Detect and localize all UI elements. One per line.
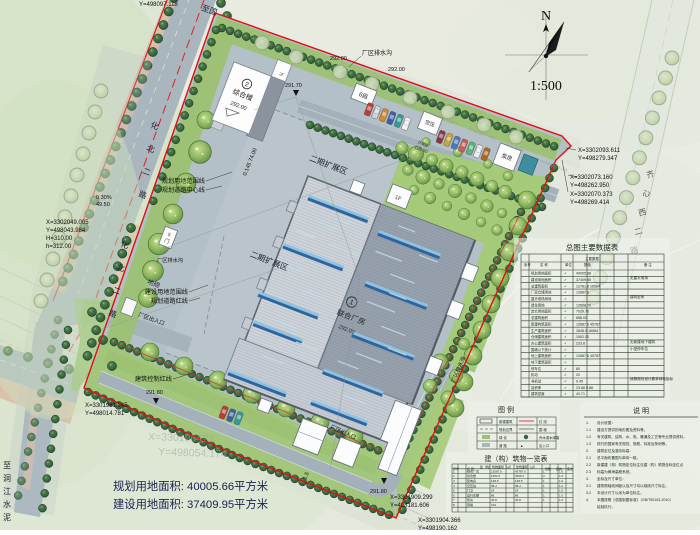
svg-text:X=3301904.366: X=3301904.366	[418, 518, 461, 524]
svg-text:序号: 序号	[524, 262, 531, 267]
svg-text:备 注: 备 注	[644, 262, 652, 267]
svg-text:建（构）筑物一览表: 建（构）筑物一览表	[485, 454, 548, 463]
svg-text:按照规划设计要求绿地指标: 按照规划设计要求绿地指标	[630, 376, 674, 381]
svg-text:✓: ✓	[564, 367, 567, 371]
svg-text:1.2: 1.2	[586, 435, 591, 439]
svg-text:建（构）筑物面积（㎡）: 建（构）筑物面积（㎡）	[480, 464, 513, 469]
svg-text:X=3301981.245: X=3301981.245	[85, 403, 128, 409]
svg-text:23.88 9.88: 23.88 9.88	[576, 386, 593, 390]
svg-text:有关建筑、结构、水、电、暖通及工艺等专业提供资料。: 有关建筑、结构、水、电、暖通及工艺等专业提供资料。	[597, 434, 687, 439]
svg-text:86: 86	[515, 493, 519, 497]
svg-text:12781.8 16584: 12781.8 16584	[576, 284, 600, 288]
svg-text:江: 江	[3, 487, 11, 496]
svg-text:备注: 备注	[567, 466, 573, 471]
svg-text:✓: ✓	[564, 373, 567, 377]
svg-text:现行的国家有关规范、规程、标准及条例等。: 现行的国家有关规范、规程、标准及条例等。	[597, 441, 669, 446]
svg-text:X=3301964?2: X=3301964?2	[148, 431, 214, 445]
svg-text:148.5: 148.5	[491, 479, 499, 483]
svg-text:1.0: 1.0	[559, 484, 564, 488]
svg-text:13587.6: 13587.6	[576, 291, 589, 295]
svg-text:✓: ✓	[564, 342, 567, 346]
svg-text:X=3302093.611: X=3302093.611	[578, 148, 621, 154]
svg-text:4.: 4.	[586, 498, 589, 502]
svg-text:291.80: 291.80	[146, 390, 163, 396]
svg-text:45787.6: 45787.6	[515, 469, 526, 473]
svg-text:86: 86	[491, 493, 495, 497]
svg-text:规划道路中心线: 规划道路中心线	[162, 186, 205, 194]
svg-text:13508.76: 13508.76	[576, 303, 591, 307]
svg-text:X=3301909.299: X=3301909.299	[390, 495, 433, 501]
svg-text:✓: ✓	[564, 284, 567, 288]
svg-text:其它用地面积: 其它用地面积	[531, 309, 552, 314]
svg-text:名 称: 名 称	[540, 262, 548, 267]
svg-text:✓: ✓	[564, 361, 567, 365]
svg-text:厂区排水沟: 厂区排水沟	[362, 49, 392, 57]
svg-text:7029.76: 7029.76	[576, 310, 589, 314]
svg-text:建筑定位及竖向标高：: 建筑定位及竖向标高：	[597, 448, 633, 453]
svg-text:办公建筑面积: 办公建筑面积	[531, 341, 552, 346]
svg-text:✓: ✓	[564, 335, 567, 339]
svg-text:291.70: 291.70	[285, 83, 302, 89]
svg-text:Y=498054.174: Y=498054.174	[158, 446, 227, 460]
svg-text:✓: ✓	[564, 278, 567, 282]
svg-text:2.3: 2.3	[586, 470, 591, 474]
svg-text:建设方提供的地形图及资料等。: 建设方提供的地形图及资料等。	[597, 427, 647, 432]
svg-text:43.71: 43.71	[576, 392, 585, 396]
svg-text:道 路: 道 路	[499, 443, 507, 448]
svg-text:水: 水	[3, 499, 11, 509]
svg-text:机动: 机动	[531, 372, 538, 377]
svg-text:0.45: 0.45	[576, 380, 583, 384]
svg-text:292.00: 292.00	[330, 56, 347, 62]
svg-text:主要数据: 主要数据	[585, 256, 599, 261]
svg-text:Y=498014.781: Y=498014.781	[85, 411, 125, 417]
svg-text:20: 20	[576, 373, 580, 377]
svg-text:洞: 洞	[3, 473, 11, 483]
svg-text:1.1: 1.1	[586, 428, 591, 432]
svg-text:仓储建筑面积: 仓储建筑面积	[531, 334, 552, 339]
svg-text:24: 24	[491, 489, 495, 493]
svg-text:新建建筑: 新建建筑	[499, 419, 513, 424]
svg-text:✓: ✓	[564, 322, 567, 326]
svg-text:规划用地范围线: 规划用地范围线	[162, 177, 205, 185]
svg-text:新建构筑面积: 新建构筑面积	[531, 321, 552, 326]
svg-text:Y=498269.414: Y=498269.414	[570, 200, 610, 206]
svg-text:Y=498190.162: Y=498190.162	[418, 526, 458, 530]
svg-text:Y=498262.950: Y=498262.950	[570, 183, 610, 189]
svg-text:规划用地面积: 40005.66平方米: 规划用地面积: 40005.66平方米	[113, 479, 268, 493]
svg-text:1.3: 1.3	[586, 442, 591, 446]
svg-text:绿化用地: 绿化用地	[531, 302, 545, 307]
svg-text:X=3302073.160: X=3302073.160	[570, 175, 613, 181]
svg-text:1.: 1.	[586, 421, 589, 425]
svg-text:✓: ✓	[564, 272, 567, 276]
svg-text:858.00: 858.00	[576, 316, 587, 320]
svg-text:734: 734	[491, 503, 496, 507]
svg-text:148.5: 148.5	[515, 479, 523, 483]
svg-text:总平面布置图与单体一致。: 总平面布置图与单体一致。	[597, 455, 640, 460]
svg-text:1.0: 1.0	[559, 498, 564, 502]
svg-text:4506.0: 4506.0	[515, 474, 525, 478]
svg-text:无露天堆场: 无露天堆场	[630, 275, 648, 280]
svg-text:绘制执行。: 绘制执行。	[597, 504, 615, 509]
svg-text:地上建筑面积: 地上建筑面积	[531, 353, 552, 358]
svg-text:围 墙: 围 墙	[539, 427, 547, 432]
svg-text:1:500: 1:500	[530, 79, 562, 94]
svg-text:✓: ✓	[564, 316, 567, 320]
svg-text:1502.0: 1502.0	[491, 474, 501, 478]
svg-text:1.0: 1.0	[559, 474, 564, 478]
svg-text:建筑控制红线: 建筑控制红线	[135, 375, 172, 383]
svg-text:✓: ✓	[564, 310, 567, 314]
svg-text:绿 化: 绿 化	[499, 435, 507, 440]
svg-text:✓: ✓	[564, 380, 567, 384]
svg-text:✓: ✓	[564, 291, 567, 295]
svg-text:自行车棚: 自行车棚	[467, 492, 479, 497]
svg-text:Y=498279.347: Y=498279.347	[578, 156, 618, 162]
svg-text:本设计尺寸以米为单位标注。: 本设计尺寸以米为单位标注。	[597, 490, 644, 495]
svg-text:规划用地面积: 规划用地面积	[531, 271, 552, 276]
svg-text:2.1: 2.1	[586, 456, 591, 460]
svg-text:泥: 泥	[3, 513, 11, 522]
svg-text:24: 24	[515, 489, 519, 493]
svg-text:N: N	[541, 9, 551, 24]
svg-text:规划道路红线: 规划道路红线	[151, 297, 188, 305]
svg-text:坐标及尺寸单位：: 坐标及尺寸单位：	[597, 476, 626, 481]
svg-text:层数: 层数	[545, 466, 551, 471]
svg-text:X=3302070.373: X=3302070.373	[570, 192, 613, 198]
svg-text:98.4: 98.4	[515, 484, 521, 488]
svg-text:建筑物轴线间距以及尺寸均以轴线尺寸标注。: 建筑物轴线间距以及尺寸均以轴线尺寸标注。	[597, 483, 669, 488]
svg-text:停车位: 停车位	[531, 366, 542, 371]
svg-text:本图按照《总图制图标准》（GB/T50103-2010）: 本图按照《总图制图标准》（GB/T50103-2010）	[597, 497, 673, 502]
svg-text:小型停车位: 小型停车位	[630, 346, 648, 351]
svg-text:非机动: 非机动	[531, 379, 542, 384]
svg-text:生产建筑面积: 生产建筑面积	[531, 328, 552, 333]
svg-text:13587.6 45787: 13587.6 45787	[576, 322, 600, 326]
svg-text:Y=498181.606: Y=498181.606	[390, 503, 430, 509]
svg-text:X=3302049.005: X=3302049.005	[46, 220, 89, 226]
svg-text:泵房: 泵房	[467, 497, 473, 502]
svg-text:新建建（构）筑物定位标注见建（构）筑物坐标定位点: 新建建（构）筑物定位标注见建（构）筑物坐标定位点	[597, 462, 684, 467]
svg-text:地下建筑面积: 地下建筑面积	[531, 360, 552, 365]
svg-text:单位: 单位	[565, 262, 572, 267]
svg-text:无新建地下建筑: 无新建地下建筑	[630, 339, 656, 344]
svg-text:✓: ✓	[564, 392, 567, 396]
svg-text:1502.00: 1502.00	[576, 335, 589, 339]
svg-text:13587.6 45787: 13587.6 45787	[576, 354, 600, 358]
svg-text:建设用地范围线: 建设用地范围线	[145, 288, 188, 296]
svg-text:总建筑面积: 总建筑面积	[531, 283, 549, 288]
svg-text:98.4: 98.4	[491, 484, 497, 488]
svg-text:3.2: 3.2	[586, 491, 591, 495]
svg-text:✓: ✓	[564, 303, 567, 307]
svg-text:建设用地面积: 37409.95平方米: 建设用地面积: 37409.95平方米	[113, 497, 268, 511]
svg-text:说 明: 说 明	[633, 406, 649, 415]
svg-text:建筑密度: 建筑密度	[531, 391, 545, 396]
svg-text:✓: ✓	[564, 386, 567, 390]
svg-text:综合楼: 综合楼	[467, 473, 476, 478]
svg-text:厂区排水沟: 厂区排水沟	[157, 256, 183, 264]
svg-text:门卫: 门卫	[467, 488, 473, 493]
svg-text:✓: ✓	[564, 297, 567, 301]
svg-text:49.50: 49.50	[96, 202, 110, 208]
svg-text:厂房仓储用地: 厂房仓储用地	[531, 290, 552, 295]
svg-text:建筑密米: 建筑密米	[630, 294, 645, 299]
svg-text:40005.66: 40005.66	[576, 272, 591, 276]
svg-text:至: 至	[3, 461, 11, 470]
svg-text:3.1: 3.1	[586, 484, 591, 488]
svg-text:名 称: 名 称	[467, 466, 474, 471]
svg-text:1.0: 1.0	[559, 479, 564, 483]
svg-text:露天堆场用地: 露天堆场用地	[531, 296, 552, 301]
svg-text:292.00: 292.00	[388, 67, 405, 73]
svg-text:✓: ✓	[564, 329, 567, 333]
svg-text:建筑面积（㎡）: 建筑面积（㎡）	[516, 464, 537, 469]
svg-text:3.: 3.	[586, 477, 589, 481]
svg-text:结构: 结构	[556, 466, 562, 471]
svg-text:容积率: 容积率	[531, 385, 542, 390]
svg-text:规划边界: 规划边界	[499, 427, 513, 432]
svg-text:总图主要数据表: 总图主要数据表	[566, 242, 619, 252]
svg-text:233.8: 233.8	[576, 342, 585, 346]
svg-text:45.8: 45.8	[515, 498, 521, 502]
svg-text:80: 80	[576, 367, 580, 371]
svg-text:1848.5 16584: 1848.5 16584	[576, 329, 598, 333]
svg-text:✓: ✓	[564, 348, 567, 352]
svg-text:45.8: 45.8	[491, 498, 497, 502]
svg-text:✓: ✓	[564, 354, 567, 358]
svg-text:标高为黄海高程系统。: 标高为黄海高程系统。	[597, 469, 633, 474]
svg-text:2.: 2.	[586, 449, 589, 453]
svg-text:Y=498043.984: Y=498043.984	[46, 228, 86, 234]
svg-text:0.30%: 0.30%	[96, 195, 112, 201]
svg-text:围墙: 围墙	[467, 502, 473, 507]
svg-text:▲: ▲	[520, 444, 523, 448]
svg-text:h=312.00: h=312.00	[46, 244, 72, 250]
svg-text:H=310.00: H=310.00	[46, 236, 73, 242]
svg-text:空压站: 空压站	[467, 483, 476, 488]
svg-text:红 线: 红 线	[539, 419, 547, 424]
svg-text:围墙以下统计: 围墙以下统计	[531, 347, 552, 352]
svg-text:1.0: 1.0	[559, 489, 564, 493]
svg-text:乔木灌木绿篱: 乔木灌木绿篱	[539, 435, 560, 440]
svg-text:总建筑面积: 总建筑面积	[531, 315, 549, 320]
svg-text:数值: 数值	[584, 262, 591, 267]
svg-text:37409.95: 37409.95	[576, 278, 591, 282]
svg-text:1.0: 1.0	[559, 493, 564, 497]
svg-text:出入口: 出入口	[539, 443, 549, 448]
svg-text:13587.6: 13587.6	[491, 469, 502, 473]
svg-text:序号: 序号	[453, 466, 459, 471]
svg-text:设计依据：: 设计依据：	[597, 420, 615, 425]
svg-text:291.80: 291.80	[370, 489, 387, 495]
svg-text:2.2: 2.2	[586, 463, 591, 467]
svg-text:图 例: 图 例	[498, 405, 514, 414]
svg-text:Y=498097.118: Y=498097.118	[139, 2, 178, 8]
svg-text:配电房: 配电房	[467, 478, 476, 483]
svg-text:建设用地面积: 建设用地面积	[531, 277, 552, 282]
